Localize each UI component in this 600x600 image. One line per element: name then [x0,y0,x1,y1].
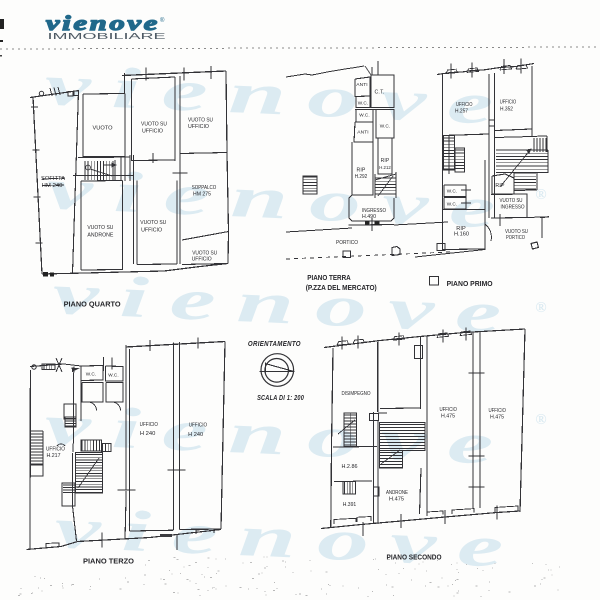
svg-text:UFFICIO: UFFICIO [500,100,517,106]
svg-text:ANDRONE: ANDRONE [386,490,408,496]
svg-text:HM 275: HM 275 [193,192,211,198]
svg-text:UFFICIO: UFFICIO [439,407,457,413]
svg-text:VUOTO SU: VUOTO SU [141,122,167,128]
svg-text:RIP: RIP [381,158,390,164]
svg-text:UFFICIO: UFFICIO [488,408,506,414]
svg-text:VUOTO: VUOTO [93,126,113,132]
svg-text:H.217: H.217 [47,453,61,459]
svg-text:VUOTO SU: VUOTO SU [500,198,523,204]
svg-text:PIANO TERRA: PIANO TERRA [307,273,351,282]
svg-text:H.475: H.475 [490,415,504,421]
svg-text:(P.ZZA DEL MERCATO): (P.ZZA DEL MERCATO) [306,283,378,292]
svg-text:H.257: H.257 [455,109,468,115]
svg-text:W.C.: W.C. [380,124,391,129]
svg-text:UFFICIO: UFFICIO [456,102,473,108]
svg-text:SCALA DI 1: 200: SCALA DI 1: 200 [257,393,304,402]
svg-text:W.C.: W.C. [358,101,369,106]
svg-text:ANDRONE: ANDRONE [87,233,113,239]
svg-text:UFFICIO: UFFICIO [140,422,158,428]
svg-text:UFFICIO: UFFICIO [46,447,65,453]
svg-text:UFFICIO: UFFICIO [142,129,163,135]
svg-text:UFFICIO: UFFICIO [188,124,209,130]
svg-text:H.292: H.292 [355,174,368,180]
svg-text:INGRESSO: INGRESSO [501,205,525,211]
svg-text:H.2.86: H.2.86 [342,464,358,470]
svg-text:®: ® [535,412,546,428]
svg-text:H.475: H.475 [441,414,455,420]
svg-text:H 240: H 240 [140,431,156,437]
svg-text:VUOTO SU: VUOTO SU [188,118,213,124]
svg-text:W.C.: W.C. [108,373,119,378]
svg-text:DISIMPEGNO: DISIMPEGNO [342,391,371,397]
svg-text:PIANO SECONDO: PIANO SECONDO [387,553,442,562]
svg-text:IMMOBILIARE: IMMOBILIARE [48,32,167,41]
svg-text:UFFICIO: UFFICIO [192,257,212,263]
svg-text:C.T.: C.T. [374,90,384,96]
svg-text:®: ® [535,300,546,316]
svg-text:®: ® [160,17,165,24]
svg-text:SOPPALCO: SOPPALCO [192,185,217,191]
svg-text:VUOTO SU: VUOTO SU [87,225,113,231]
svg-text:RIP: RIP [495,183,505,189]
svg-text:VUOTO SU: VUOTO SU [140,220,166,226]
svg-text:H.490: H.490 [362,214,376,220]
svg-text:ORIENTAMENTO: ORIENTAMENTO [248,339,301,348]
svg-text:H.391: H.391 [343,502,357,508]
svg-text:HM 240: HM 240 [42,183,63,189]
svg-text:W.C.: W.C. [447,202,458,207]
svg-text:W.C.: W.C. [447,189,458,194]
svg-text:W.C.: W.C. [359,113,370,118]
svg-text:PORTICO: PORTICO [506,235,525,241]
svg-text:ANTI: ANTI [356,82,368,88]
svg-text:H.160: H.160 [454,232,469,238]
svg-text:H.352: H.352 [500,107,513,113]
svg-text:ANTI: ANTI [357,130,369,136]
svg-text:UFFICIO: UFFICIO [141,228,162,234]
svg-text:PIANO PRIMO: PIANO PRIMO [447,279,493,288]
svg-text:PIANO QUARTO: PIANO QUARTO [64,300,121,309]
svg-text:RIP: RIP [357,168,366,174]
svg-text:W.C.: W.C. [86,372,97,377]
svg-text:PORTICO: PORTICO [336,240,358,246]
svg-text:H.475: H.475 [389,497,404,503]
svg-text:H 240: H 240 [188,432,203,438]
svg-text:PIANO TERZO: PIANO TERZO [83,557,134,566]
svg-text:H.212: H.212 [379,165,391,171]
svg-text:UFFICIO: UFFICIO [189,422,207,428]
